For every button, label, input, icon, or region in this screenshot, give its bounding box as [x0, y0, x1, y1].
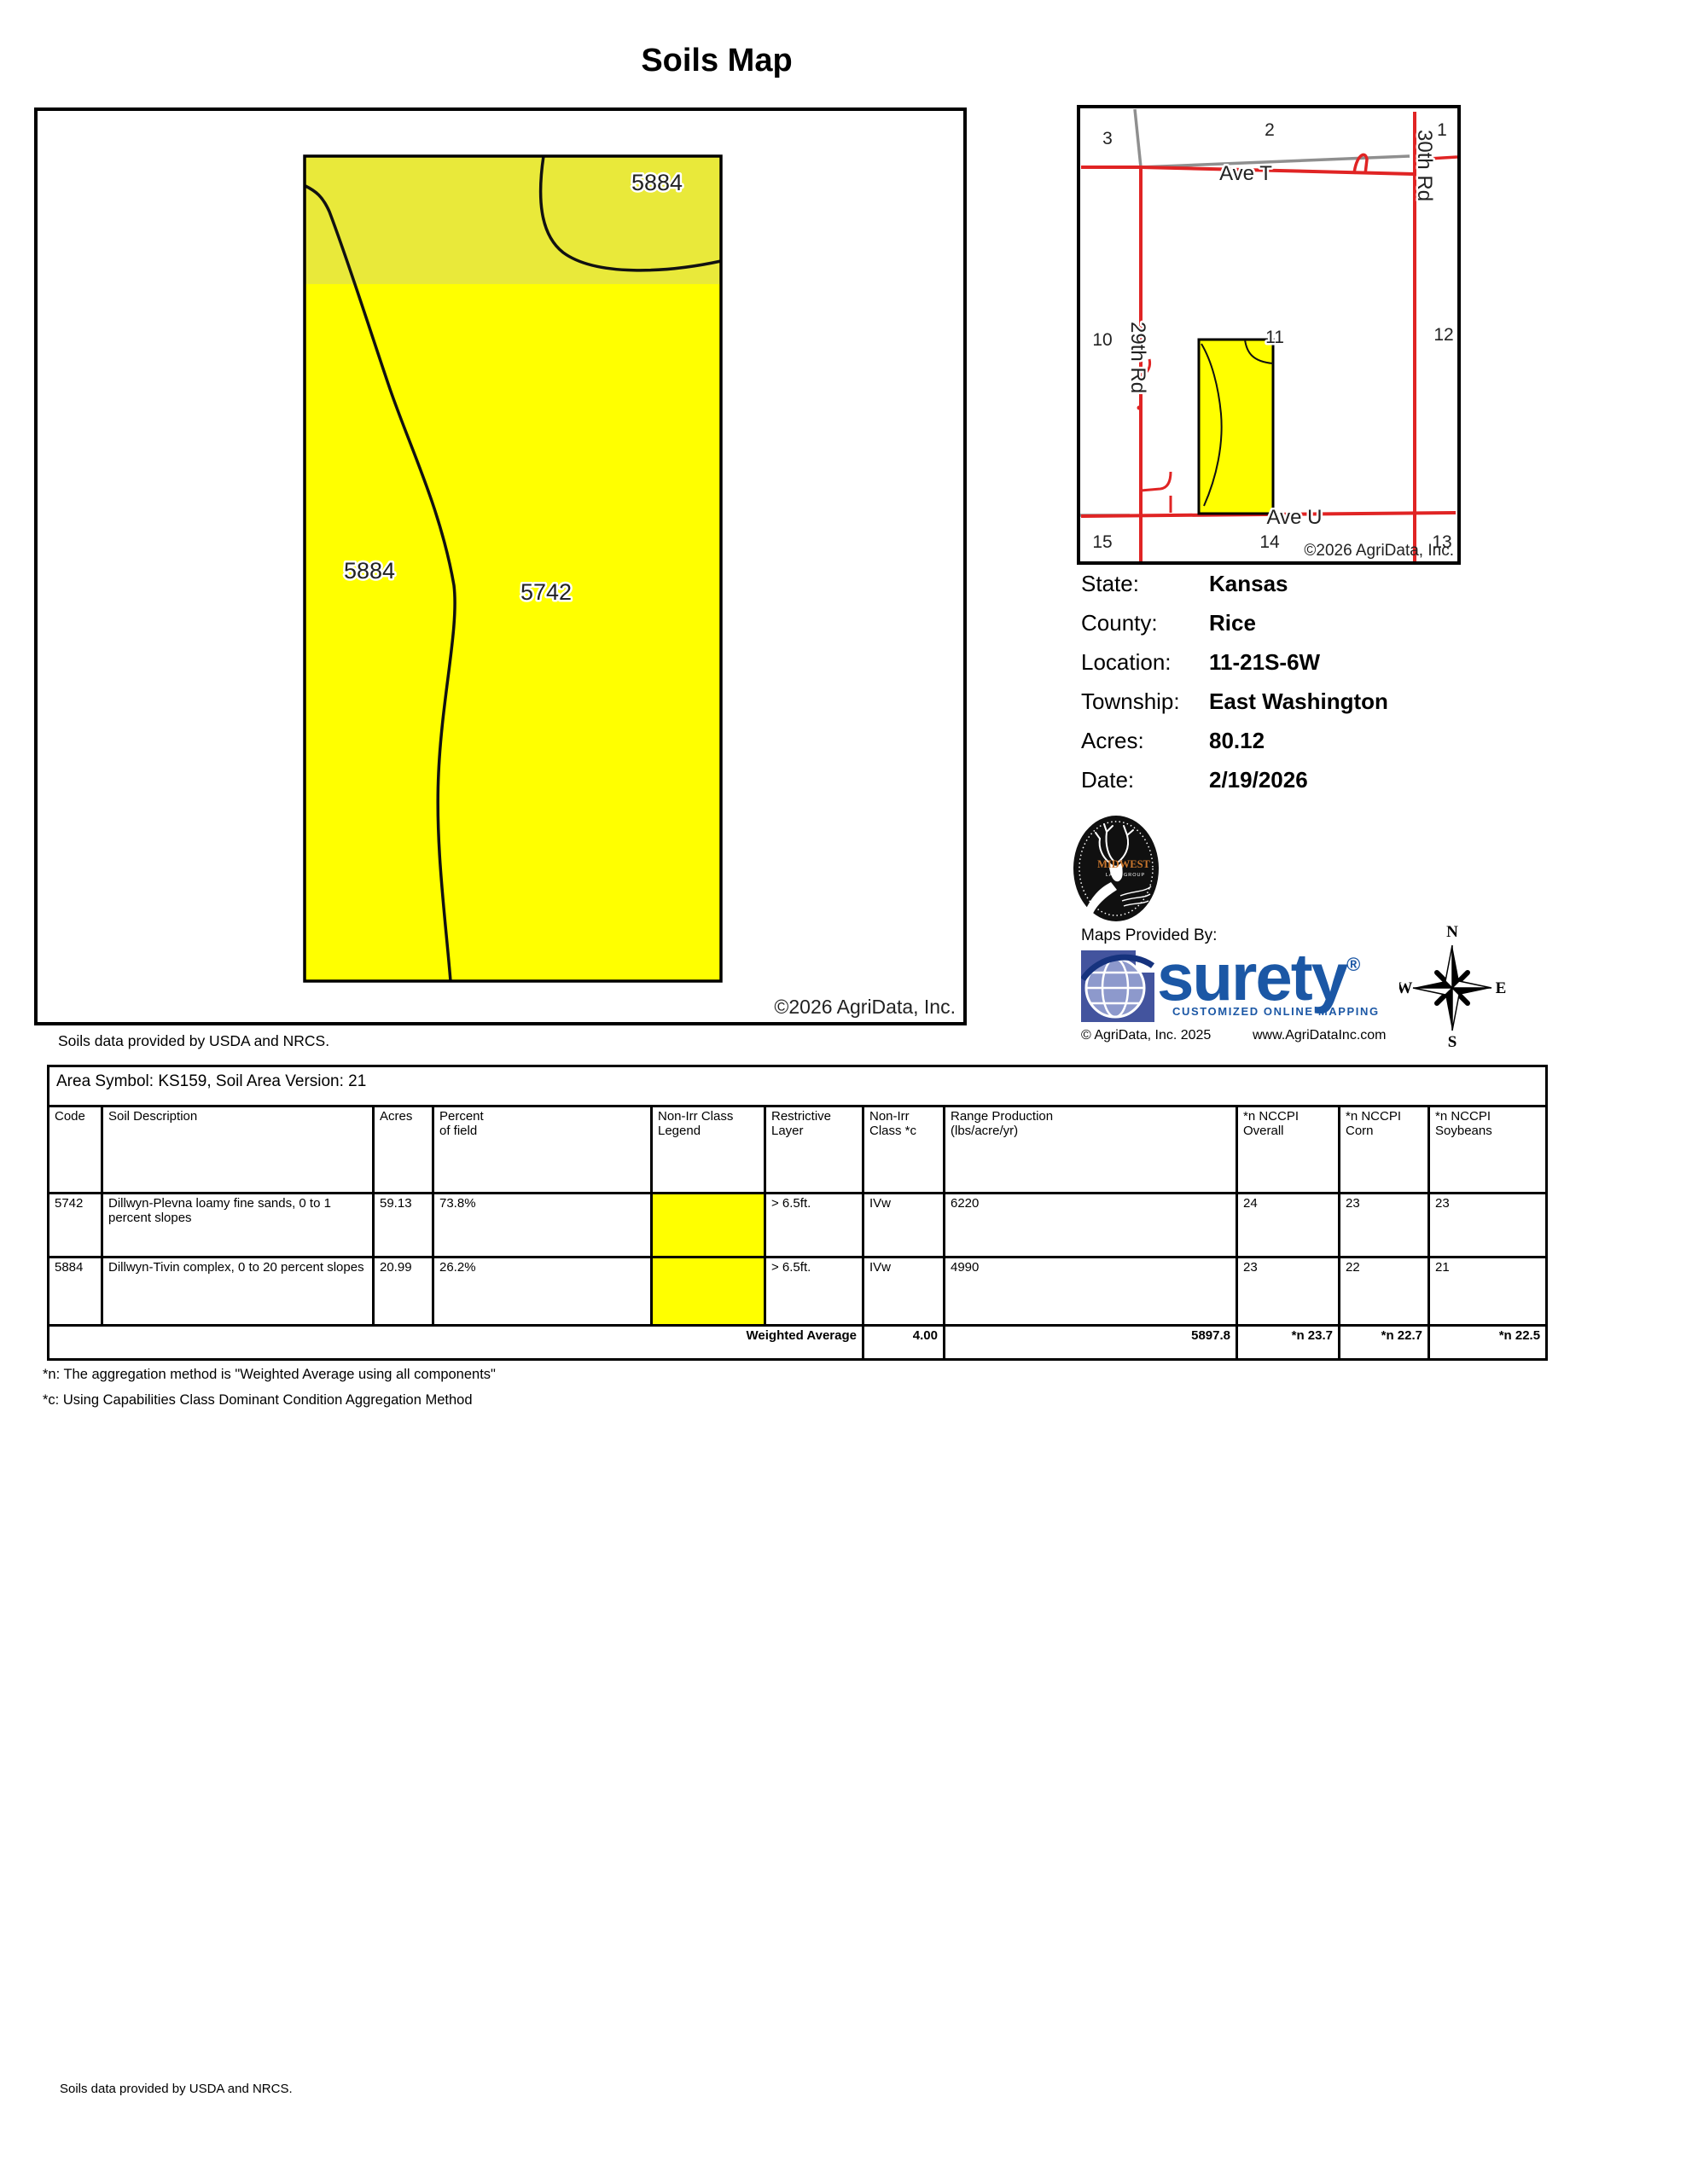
cell-legend-swatch: [652, 1194, 765, 1258]
cell-acres: 59.13: [374, 1194, 433, 1258]
compass-rose-icon: N S W E: [1399, 921, 1506, 1049]
agridata-website: www.AgriDataInc.com: [1253, 1028, 1387, 1043]
deer-logo-icon: MIDWEST LAND GROUP: [1071, 813, 1161, 924]
table-row: 5884 Dillwyn-Tivin complex, 0 to 20 perc…: [49, 1258, 1547, 1326]
registered-mark-icon: ®: [1346, 954, 1360, 975]
compass-e: E: [1496, 979, 1506, 997]
info-value: Kansas: [1209, 571, 1288, 597]
compass-n: N: [1446, 923, 1458, 941]
cell-production: 6220: [945, 1194, 1237, 1258]
info-row-acres: Acres: 80.12: [1081, 728, 1559, 757]
section-10: 10: [1092, 330, 1112, 350]
soils-map-canvas: 5884 5884 5742 ©2026 AgriData, Inc.: [38, 111, 963, 1022]
info-label: County:: [1081, 610, 1158, 636]
soil-label-5884-top: 5884: [631, 170, 683, 195]
weighted-average-label: Weighted Average: [49, 1326, 863, 1360]
surety-globe-icon: [1081, 950, 1154, 1022]
col-header-legend: Non-Irr Class Legend: [652, 1107, 765, 1194]
driveway-branch: [1141, 472, 1171, 491]
area-symbol-row: Area Symbol: KS159, Soil Area Version: 2…: [49, 1066, 1547, 1107]
locator-map-canvas: 3 2 1 10 11 12 15 14 13 Ave T Ave U 30th…: [1080, 108, 1457, 561]
col-header-code: Code: [49, 1107, 102, 1194]
cell-production: 4990: [945, 1258, 1237, 1326]
section-15: 15: [1092, 532, 1112, 552]
soil-label-5742: 5742: [520, 579, 572, 605]
cell-description: Dillwyn-Tivin complex, 0 to 20 percent s…: [102, 1258, 374, 1326]
area-symbol-cell: Area Symbol: KS159, Soil Area Version: 2…: [49, 1066, 1547, 1107]
col-header-nccpi-corn: *n NCCPI Corn: [1340, 1107, 1429, 1194]
wa-nccpi-overall: *n 23.7: [1237, 1326, 1340, 1360]
col-header-nonirr-class: Non-Irr Class *c: [863, 1107, 945, 1194]
info-label: Location:: [1081, 649, 1172, 676]
col-header-description: Soil Description: [102, 1107, 374, 1194]
info-row-location: Location: 11-21S-6W: [1081, 649, 1559, 678]
info-label: Date:: [1081, 767, 1134, 793]
section-3: 3: [1102, 129, 1113, 148]
agridata-copyright: © AgriData, Inc. 2025: [1081, 1028, 1211, 1043]
col-header-restrictive: Restrictive Layer: [765, 1107, 863, 1194]
wa-nccpi-corn: *n 22.7: [1340, 1326, 1429, 1360]
soils-table: Area Symbol: KS159, Soil Area Version: 2…: [47, 1065, 1548, 1361]
section-1: 1: [1437, 120, 1447, 140]
map-copyright: ©2026 AgriData, Inc.: [774, 996, 956, 1018]
compass-w: W: [1399, 979, 1413, 997]
cell-restrictive: > 6.5ft.: [765, 1258, 863, 1326]
soil-label-5884-left: 5884: [344, 558, 395, 584]
cell-nccpi-soybeans: 23: [1429, 1194, 1547, 1258]
wa-production: 5897.8: [945, 1326, 1237, 1360]
soils-map-panel: 5884 5884 5742 ©2026 AgriData, Inc.: [34, 107, 967, 1025]
col-header-nccpi-soybeans: *n NCCPI Soybeans: [1429, 1107, 1547, 1194]
info-value: 11-21S-6W: [1209, 649, 1320, 676]
cell-nonirr-class: IVw: [863, 1194, 945, 1258]
gray-road-ave-t: [1141, 156, 1410, 167]
info-row-date: Date: 2/19/2026: [1081, 767, 1559, 796]
info-label: State:: [1081, 571, 1139, 597]
table-row: 5742 Dillwyn-Plevna loamy fine sands, 0 …: [49, 1194, 1547, 1258]
soils-map-report-page: Soils Map 5884 5884 5742 ©2026 AgriData,…: [0, 0, 1692, 2184]
cell-code: 5884: [49, 1258, 102, 1326]
info-row-county: County: Rice: [1081, 610, 1559, 639]
road-label-30th-rd: 30th Rd: [1413, 130, 1436, 201]
cell-restrictive: > 6.5ft.: [765, 1194, 863, 1258]
col-header-percent: Percent of field: [433, 1107, 652, 1194]
locator-map-panel: 3 2 1 10 11 12 15 14 13 Ave T Ave U 30th…: [1077, 105, 1461, 565]
info-value: East Washington: [1209, 688, 1388, 715]
info-value: 80.12: [1209, 728, 1265, 754]
cell-nccpi-overall: 23: [1237, 1258, 1340, 1326]
weighted-average-row: Weighted Average 4.00 5897.8 *n 23.7 *n …: [49, 1326, 1547, 1360]
footnote-c: *c: Using Capabilities Class Dominant Co…: [43, 1392, 473, 1409]
locator-field: [1199, 340, 1273, 514]
section-14: 14: [1259, 532, 1280, 552]
gray-road-north: [1135, 109, 1141, 167]
footnote-n: *n: The aggregation method is "Weighted …: [43, 1367, 496, 1383]
cell-percent: 26.2%: [433, 1258, 652, 1326]
usda-note-bottom: Soils data provided by USDA and NRCS.: [60, 2082, 293, 2096]
road-label-ave-u: Ave U: [1267, 506, 1323, 529]
cell-nonirr-class: IVw: [863, 1258, 945, 1326]
locator-copyright: ©2026 AgriData, Inc.: [1304, 542, 1454, 560]
cell-code: 5742: [49, 1194, 102, 1258]
info-row-state: State: Kansas: [1081, 571, 1559, 600]
info-row-township: Township: East Washington: [1081, 688, 1559, 717]
wa-nonirr-class: 4.00: [863, 1326, 945, 1360]
cell-acres: 20.99: [374, 1258, 433, 1326]
section-11: 11: [1265, 328, 1284, 347]
section-12: 12: [1433, 325, 1453, 345]
cell-percent: 73.8%: [433, 1194, 652, 1258]
usda-note: Soils data provided by USDA and NRCS.: [58, 1032, 329, 1050]
road-dot: [1137, 406, 1142, 410]
section-2: 2: [1265, 120, 1275, 140]
road-label-ave-t: Ave T: [1219, 162, 1272, 185]
table-header-row: Code Soil Description Acres Percent of f…: [49, 1107, 1547, 1194]
page-title: Soils Map: [546, 43, 887, 79]
info-label: Township:: [1081, 688, 1180, 715]
cell-nccpi-soybeans: 21: [1429, 1258, 1547, 1326]
surety-wordmark: surety®: [1157, 944, 1360, 1010]
wa-nccpi-soybeans: *n 22.5: [1429, 1326, 1547, 1360]
cell-nccpi-corn: 23: [1340, 1194, 1429, 1258]
info-value: 2/19/2026: [1209, 767, 1308, 793]
midwest-wordmark: MIDWEST: [1097, 858, 1150, 870]
cell-description: Dillwyn-Plevna loamy fine sands, 0 to 1 …: [102, 1194, 374, 1258]
cell-nccpi-overall: 24: [1237, 1194, 1340, 1258]
compass-s: S: [1448, 1033, 1457, 1049]
surety-text: surety: [1157, 939, 1346, 1014]
info-value: Rice: [1209, 610, 1256, 636]
cell-legend-swatch: [652, 1258, 765, 1326]
col-header-nccpi-overall: *n NCCPI Overall: [1237, 1107, 1340, 1194]
surety-tagline: CUSTOMIZED ONLINE MAPPING: [1172, 1005, 1380, 1018]
road-label-29th-rd: 29th Rd: [1126, 322, 1149, 393]
col-header-acres: Acres: [374, 1107, 433, 1194]
midwest-land-group-logo: MIDWEST LAND GROUP: [1071, 813, 1161, 924]
col-header-production: Range Production (lbs/acre/yr): [945, 1107, 1237, 1194]
info-label: Acres:: [1081, 728, 1144, 754]
cell-nccpi-corn: 22: [1340, 1258, 1429, 1326]
midwest-subtext: LAND GROUP: [1106, 873, 1145, 878]
